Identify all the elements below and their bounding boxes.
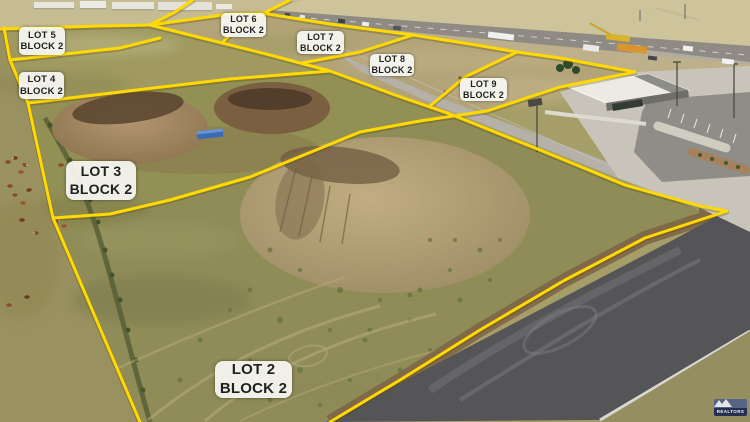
lot-number: LOT 2 (215, 361, 292, 380)
lot-label-lot6: LOT 6 BLOCK 2 (221, 13, 266, 37)
lot-label-lot8: LOT 8 BLOCK 2 (370, 54, 414, 76)
lot-number: LOT 5 (19, 30, 65, 41)
realtors-text: REALTORS (714, 408, 747, 416)
block-number: BLOCK 2 (370, 65, 414, 76)
block-number: BLOCK 2 (19, 41, 65, 52)
block-number: BLOCK 2 (66, 181, 136, 199)
block-number: BLOCK 2 (297, 43, 344, 54)
lot-label-lot3: LOT 3 BLOCK 2 (66, 161, 136, 200)
lot-number: LOT 6 (221, 14, 266, 25)
lot-number: LOT 9 (460, 79, 507, 90)
lot-label-lot2: LOT 2 BLOCK 2 (215, 361, 292, 398)
aerial-lot-map: LOT 5 BLOCK 2 LOT 4 BLOCK 2 LOT 6 BLOCK … (0, 0, 750, 422)
lot-label-lot5: LOT 5 BLOCK 2 (19, 27, 65, 55)
block-number: BLOCK 2 (460, 90, 507, 101)
block-number: BLOCK 2 (215, 380, 292, 399)
mountain-logo-icon (714, 399, 747, 408)
lot-label-lot4: LOT 4 BLOCK 2 (19, 72, 64, 99)
lot-number: LOT 3 (66, 163, 136, 181)
lot-label-lot7: LOT 7 BLOCK 2 (297, 31, 344, 54)
lot-number: LOT 7 (297, 32, 344, 43)
realtor-watermark: REALTORS (714, 399, 747, 416)
lot-label-lot9: LOT 9 BLOCK 2 (460, 78, 507, 101)
block-number: BLOCK 2 (221, 25, 266, 36)
central-mound (240, 137, 530, 293)
lot-number: LOT 4 (19, 74, 64, 85)
block-number: BLOCK 2 (19, 86, 64, 97)
lot-number: LOT 8 (370, 54, 414, 65)
